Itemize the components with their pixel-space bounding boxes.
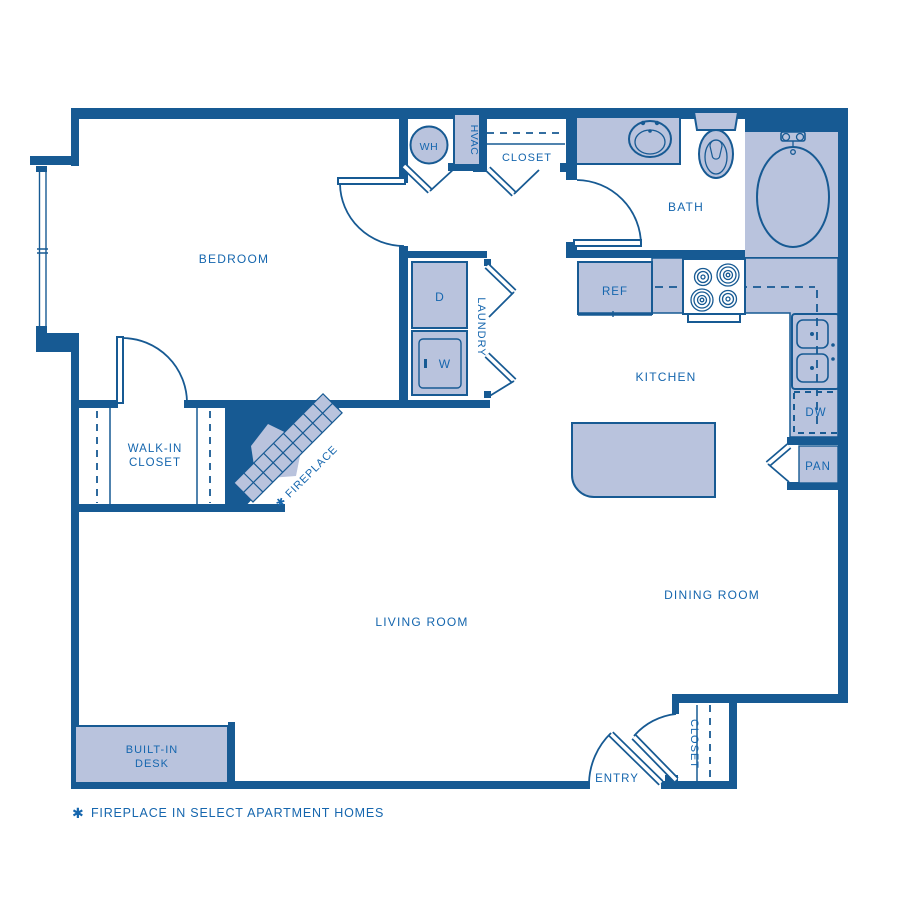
refrigerator-label: REF bbox=[602, 286, 628, 298]
pantry-door bbox=[768, 446, 789, 482]
hall-closet-shelf bbox=[487, 133, 565, 144]
bath-door bbox=[574, 180, 641, 246]
bedroom-door bbox=[338, 178, 405, 246]
kitchen-island bbox=[572, 423, 715, 497]
walk-in-closet-door bbox=[117, 337, 187, 403]
walk-in-closet-label-line2: CLOSET bbox=[129, 457, 181, 469]
laundry-label: LAUNDRY bbox=[475, 297, 487, 356]
laundry-bifold-top bbox=[487, 266, 514, 317]
floor-plan: ✱ FIREPLACE bbox=[0, 0, 900, 900]
dining-room-label: DINING ROOM bbox=[664, 588, 760, 602]
bedroom-label: BEDROOM bbox=[199, 252, 269, 266]
bedroom-window bbox=[37, 166, 48, 333]
footnote-text: FIREPLACE IN SELECT APARTMENT HOMES bbox=[91, 806, 384, 820]
walk-in-closet-shelves bbox=[97, 408, 210, 504]
hvac-closet-bifold bbox=[404, 166, 455, 191]
living-room-label: LIVING ROOM bbox=[375, 615, 468, 629]
desk-label-line1: BUILT-IN bbox=[126, 744, 178, 756]
toilet bbox=[694, 112, 738, 178]
entry-closet-label: CLOSET bbox=[688, 719, 700, 769]
kitchen-label: KITCHEN bbox=[635, 370, 696, 384]
walk-in-closet-label-line1: WALK-IN bbox=[128, 443, 183, 455]
floor-plan-drawing: ✱ FIREPLACE bbox=[0, 0, 900, 900]
dryer-label: D bbox=[435, 290, 445, 304]
entry-closet-door bbox=[634, 714, 676, 780]
washer-label: W bbox=[439, 357, 452, 371]
hvac-label: HVAC bbox=[468, 125, 480, 156]
footnote-star: ✱ bbox=[72, 805, 84, 821]
stove bbox=[683, 259, 745, 322]
entry-label: ENTRY bbox=[595, 773, 639, 785]
bathtub bbox=[745, 132, 838, 257]
bath-label: BATH bbox=[668, 200, 704, 214]
desk-label-line2: DESK bbox=[135, 758, 169, 770]
pantry-label: PAN bbox=[805, 461, 831, 473]
laundry-bifold-bottom bbox=[487, 355, 514, 397]
dishwasher-label: DW bbox=[805, 407, 826, 419]
water-heater-label: WH bbox=[420, 141, 439, 153]
hall-closet-label: CLOSET bbox=[502, 152, 552, 164]
hall-closet-bifold bbox=[488, 169, 539, 194]
